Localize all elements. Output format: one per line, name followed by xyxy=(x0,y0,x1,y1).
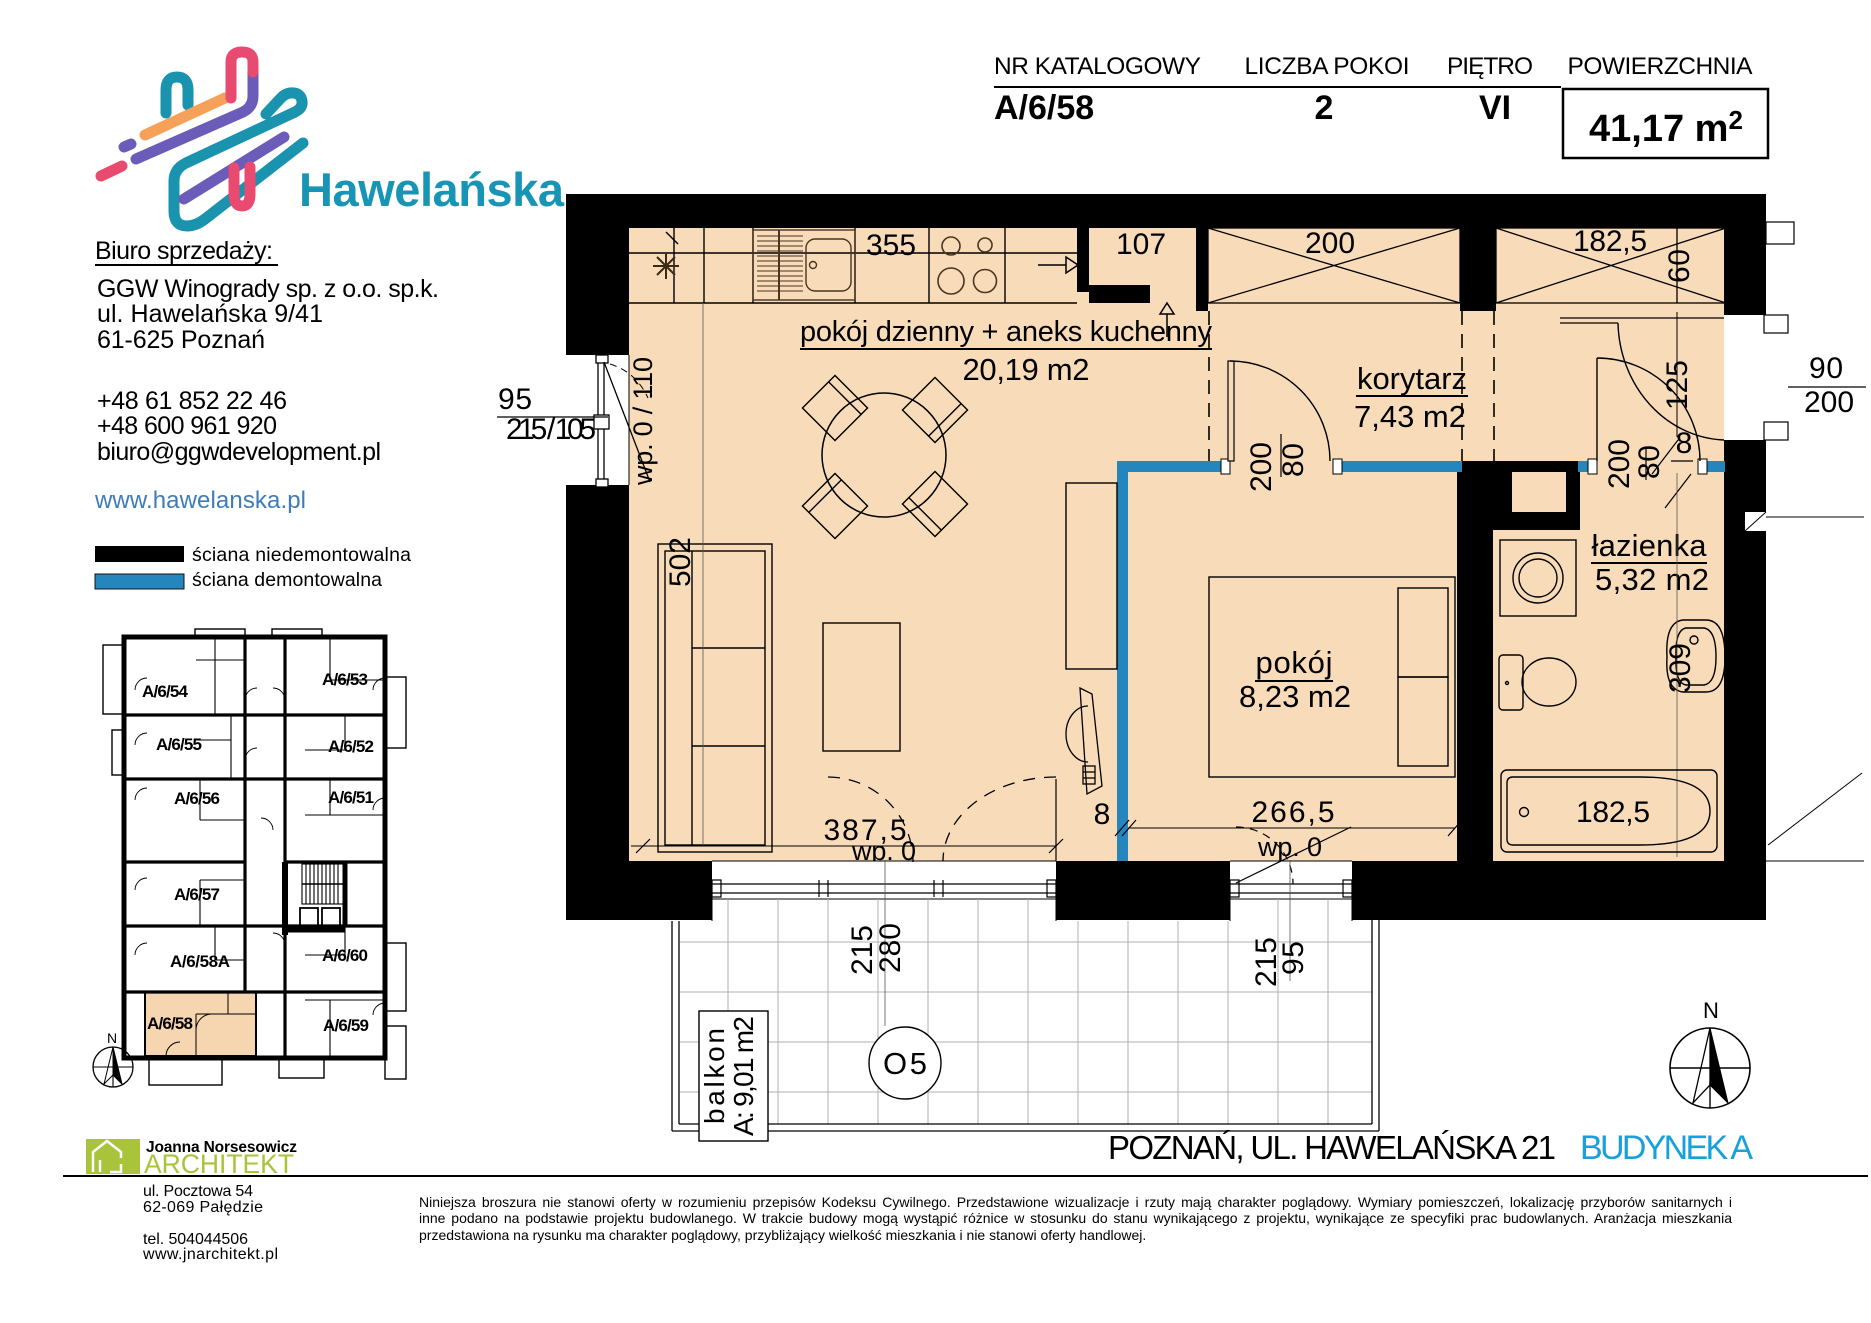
svg-text:80: 80 xyxy=(1277,443,1310,477)
svg-text:POWIERZCHNIA: POWIERZCHNIA xyxy=(1568,53,1754,80)
svg-text:5,32 m2: 5,32 m2 xyxy=(1595,562,1709,597)
svg-text:N: N xyxy=(1703,998,1719,1023)
svg-text:O5: O5 xyxy=(883,1046,927,1081)
svg-text:łazienka: łazienka xyxy=(1592,528,1708,563)
svg-text:ARCHITEKT: ARCHITEKT xyxy=(144,1149,294,1179)
svg-text:A: 9,01 m2: A: 9,01 m2 xyxy=(728,1016,759,1136)
svg-text:A/6/58: A/6/58 xyxy=(147,1014,193,1033)
svg-text:NR KATALOGOWY: NR KATALOGOWY xyxy=(994,53,1201,80)
svg-text:182,5: 182,5 xyxy=(1576,796,1650,829)
svg-text:LICZBA POKOI: LICZBA POKOI xyxy=(1245,53,1410,80)
svg-text:A/6/56: A/6/56 xyxy=(174,789,220,808)
svg-text:Biuro sprzedaży:: Biuro sprzedaży: xyxy=(95,237,273,265)
svg-text:2: 2 xyxy=(1315,89,1334,127)
svg-text:355: 355 xyxy=(866,229,916,262)
svg-text:8,23 m2: 8,23 m2 xyxy=(1239,679,1351,714)
svg-text:biuro@ggwdevelopment.pl: biuro@ggwdevelopment.pl xyxy=(97,438,381,466)
svg-text:www.hawelanska.pl: www.hawelanska.pl xyxy=(94,487,306,514)
svg-text:balkon: balkon xyxy=(699,1028,730,1124)
svg-text:266,5: 266,5 xyxy=(1252,796,1335,829)
svg-text:ściana demontowalna: ściana demontowalna xyxy=(192,569,382,591)
svg-text:ul. Hawelańska 9/41: ul. Hawelańska 9/41 xyxy=(97,300,323,328)
svg-text:VI: VI xyxy=(1479,89,1511,127)
svg-text:502: 502 xyxy=(664,537,697,587)
svg-text:A/6/60: A/6/60 xyxy=(322,946,368,965)
svg-text:ściana niedemontowalna: ściana niedemontowalna xyxy=(192,544,411,566)
svg-text:200: 200 xyxy=(1603,439,1636,489)
svg-text:200: 200 xyxy=(1804,386,1854,419)
svg-text:N: N xyxy=(107,1030,117,1046)
svg-text:62-069 Pałędzie: 62-069 Pałędzie xyxy=(143,1199,263,1216)
svg-text:A/6/58A: A/6/58A xyxy=(170,952,230,971)
svg-text:A/6/59: A/6/59 xyxy=(323,1016,369,1035)
svg-text:Hawelańska: Hawelańska xyxy=(299,163,565,216)
svg-text:90: 90 xyxy=(1809,352,1843,385)
svg-text:A/6/57: A/6/57 xyxy=(174,885,220,904)
svg-text:95: 95 xyxy=(498,383,532,416)
svg-text:8: 8 xyxy=(1094,798,1111,831)
svg-text:pokój dzienny + aneks kuchenny: pokój dzienny + aneks kuchenny xyxy=(800,316,1213,348)
svg-text:A/6/53: A/6/53 xyxy=(322,670,368,689)
svg-text:215 / 105: 215 / 105 xyxy=(506,413,596,446)
svg-text:A/6/58: A/6/58 xyxy=(994,89,1094,127)
svg-text:182,5: 182,5 xyxy=(1573,225,1647,258)
svg-text:200: 200 xyxy=(1245,442,1278,492)
svg-text:20,19 m2: 20,19 m2 xyxy=(963,352,1090,387)
svg-text:BUDYNEK A: BUDYNEK A xyxy=(1580,1129,1753,1167)
svg-text:60: 60 xyxy=(1663,249,1696,283)
svg-text:61-625 Poznań: 61-625 Poznań xyxy=(97,326,265,354)
svg-text:+48 600 961 920: +48 600 961 920 xyxy=(97,412,277,440)
svg-text:309: 309 xyxy=(1664,643,1697,693)
svg-text:A/6/52: A/6/52 xyxy=(328,737,374,756)
svg-text:wp. 0 / 110: wp. 0 / 110 xyxy=(628,357,658,486)
svg-text:200: 200 xyxy=(1305,227,1355,260)
svg-text:A/6/55: A/6/55 xyxy=(156,735,202,754)
svg-text:www.jnarchitekt.pl: www.jnarchitekt.pl xyxy=(142,1246,278,1263)
svg-text:A/6/54: A/6/54 xyxy=(142,682,189,701)
svg-text:107: 107 xyxy=(1116,228,1166,261)
svg-text:280: 280 xyxy=(874,923,907,973)
svg-text:95: 95 xyxy=(1277,941,1310,975)
svg-text:+48 61 852 22 46: +48 61 852 22 46 xyxy=(97,387,287,415)
svg-text:ul. Pocztowa 54: ul. Pocztowa 54 xyxy=(143,1183,253,1200)
svg-text:GGW Winogrady sp. z o.o. sp.k.: GGW Winogrady sp. z o.o. sp.k. xyxy=(97,275,439,303)
svg-text:POZNAŃ, UL. HAWELAŃSKA 21: POZNAŃ, UL. HAWELAŃSKA 21 xyxy=(1108,1129,1556,1166)
svg-text:korytarz: korytarz xyxy=(1357,361,1467,396)
svg-text:7,43 m2: 7,43 m2 xyxy=(1354,399,1466,434)
svg-text:pokój: pokój xyxy=(1256,645,1333,680)
svg-text:41,17 m2: 41,17 m2 xyxy=(1589,105,1743,150)
svg-text:A/6/51: A/6/51 xyxy=(328,788,374,807)
svg-text:125: 125 xyxy=(1661,360,1694,410)
svg-text:PIĘTRO: PIĘTRO xyxy=(1447,53,1533,80)
